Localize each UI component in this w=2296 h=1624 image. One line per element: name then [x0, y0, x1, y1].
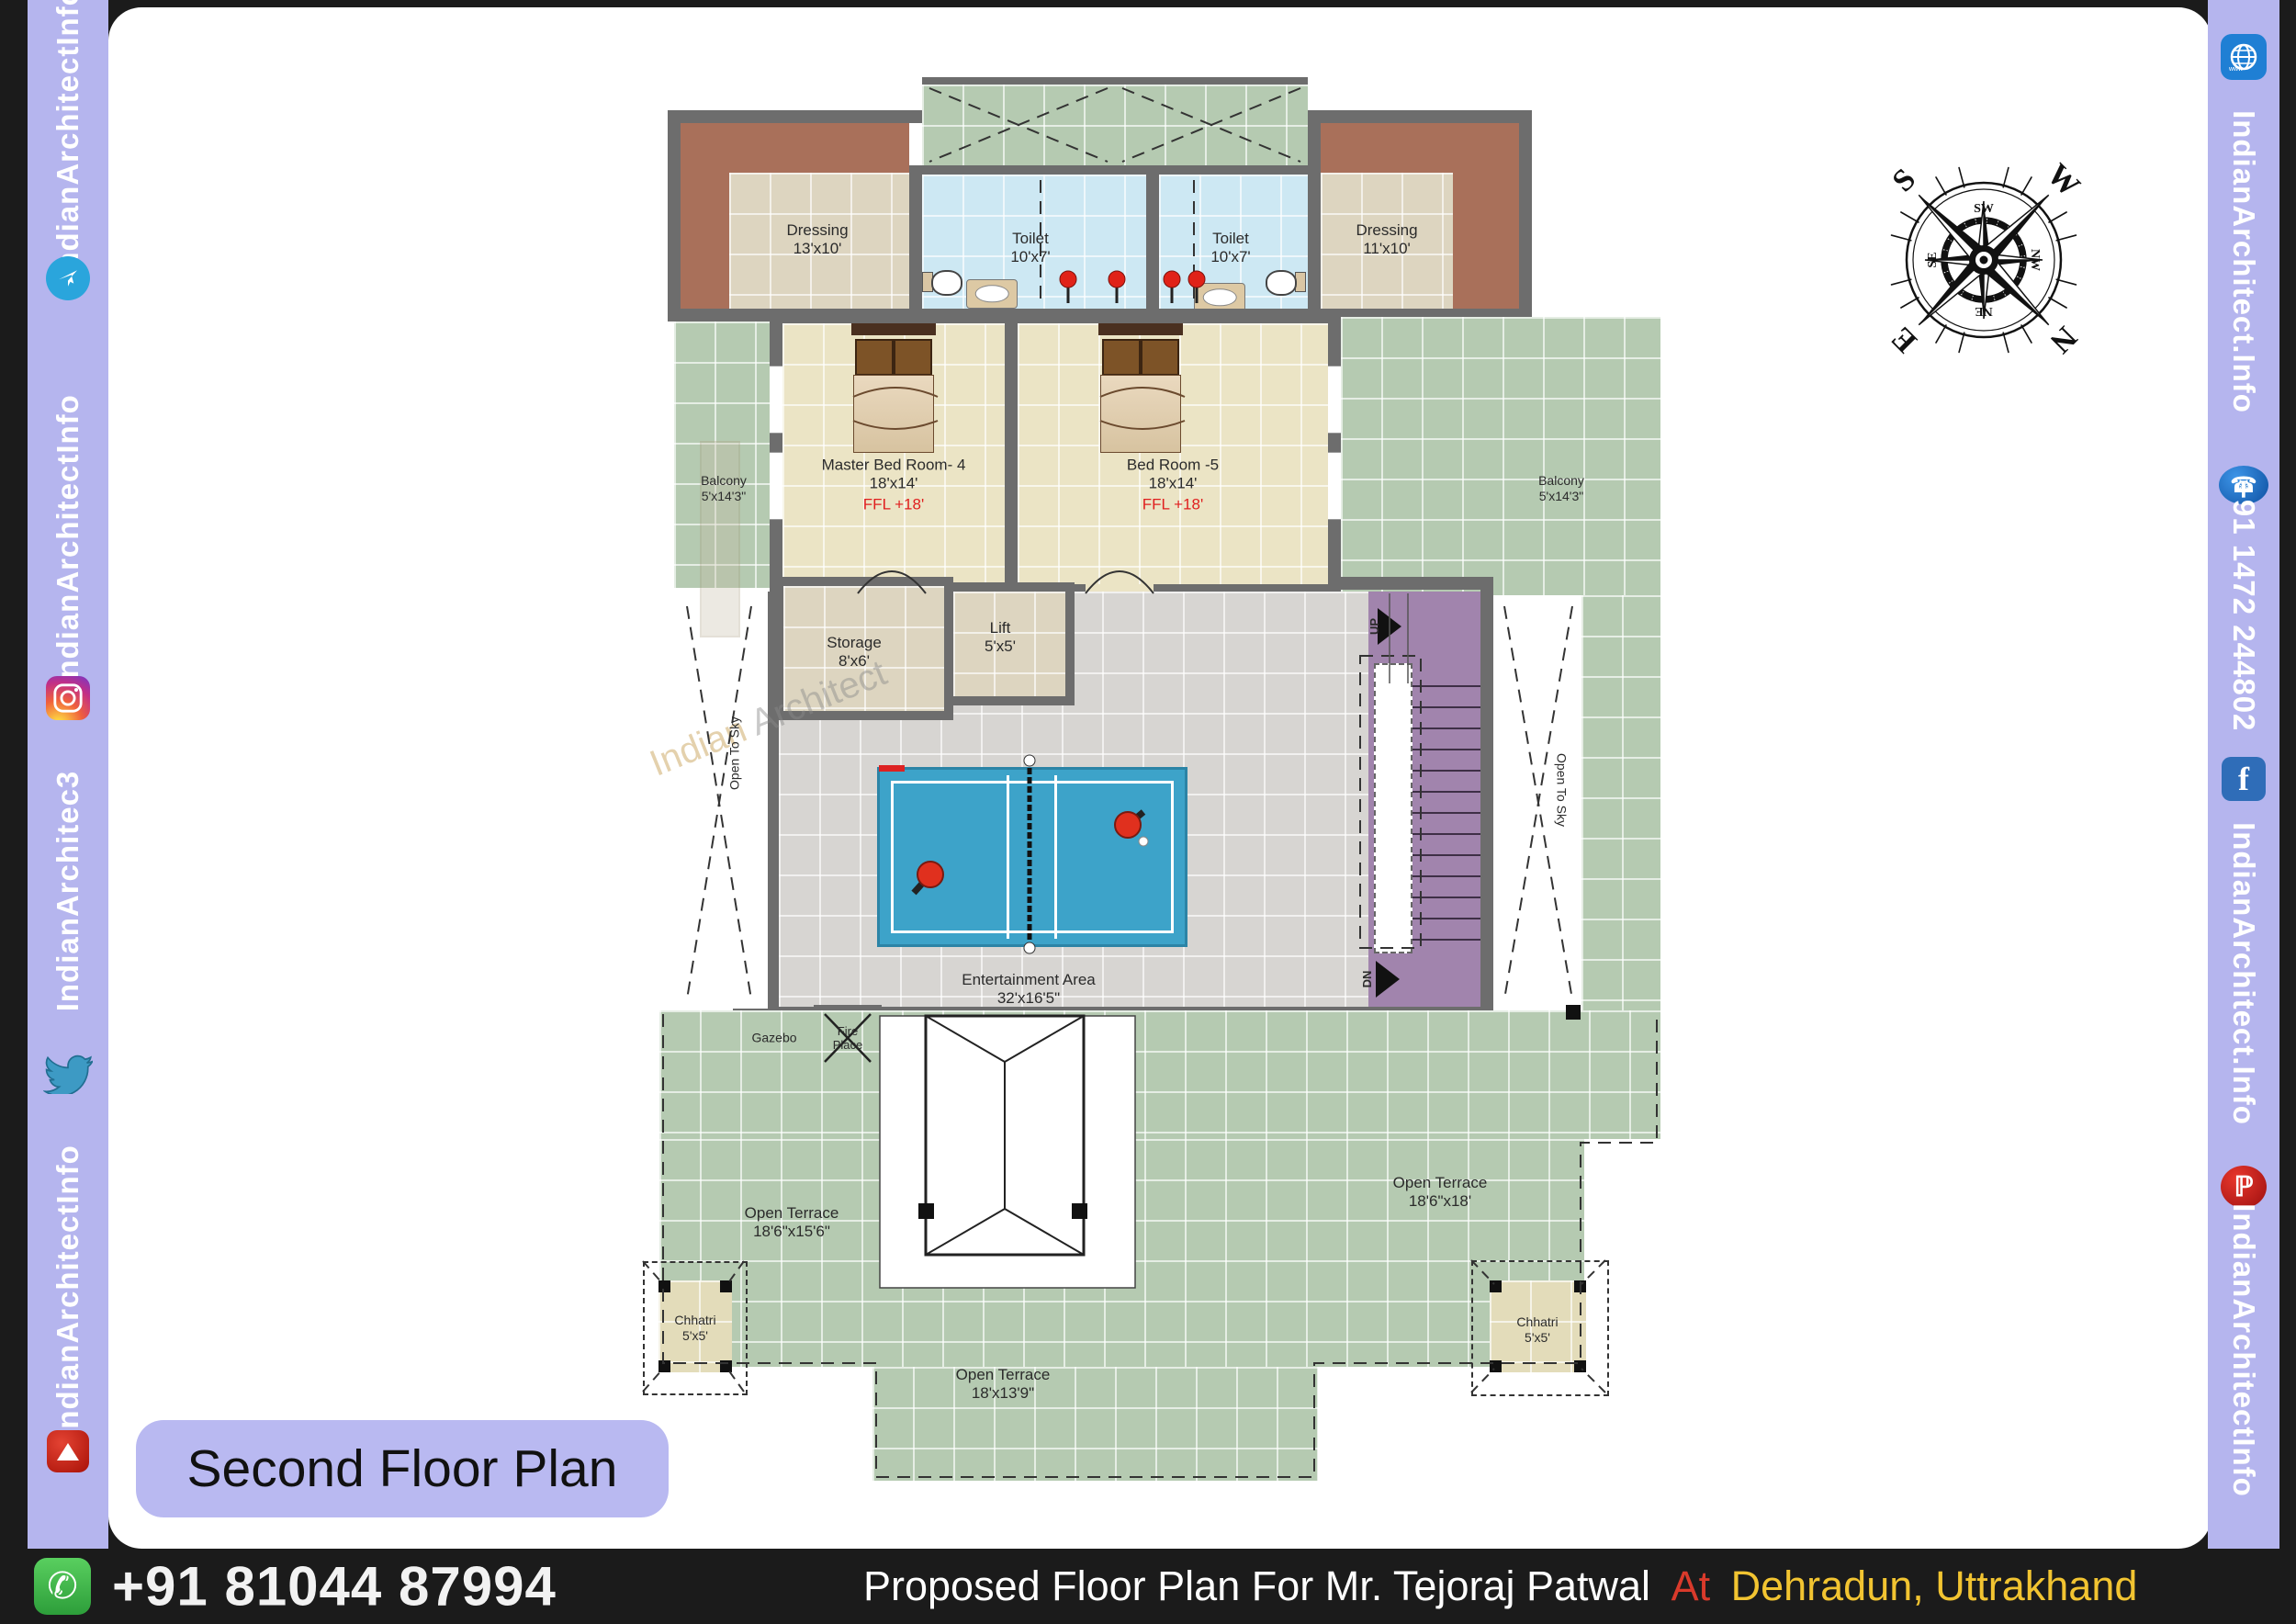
- label-terrace-left: Open Terrace18'6"x15'6": [745, 1204, 839, 1241]
- label-open-to-sky-left: Open To Sky: [727, 716, 743, 790]
- label-gazebo: Gazebo: [751, 1031, 796, 1046]
- label-stairs-up: UP: [1366, 618, 1384, 635]
- footer-title-main: Proposed Floor Plan For Mr. Tejoraj Patw…: [863, 1562, 1650, 1609]
- label-toilet-right: Toilet10'x7': [1210, 230, 1250, 266]
- label-balcony-left: Balcony5'x14'3": [701, 473, 747, 504]
- compass-ne: NE: [1975, 304, 1992, 318]
- plan-title: Second Floor Plan: [136, 1420, 669, 1517]
- skylight-roof: [880, 1016, 1135, 1288]
- label-bedroom5: Bed Room -518'x14' FFL +18': [1127, 457, 1219, 514]
- table-tennis-net-and-paddles: [914, 755, 1148, 953]
- label-terrace-right: Open Terrace18'6"x18': [1393, 1174, 1488, 1211]
- label-storage: Storage8'x6': [827, 634, 882, 671]
- compass-sw: SW: [1974, 202, 1994, 216]
- compass-rose: N E S W NE SE SW NW: [1841, 118, 2126, 402]
- whatsapp-glyph: ✆: [47, 1565, 78, 1607]
- label-entertainment: Entertainment Area32'x16'5": [962, 971, 1096, 1008]
- label-toilet-left: Toilet10'x7': [1010, 230, 1050, 266]
- whatsapp-icon[interactable]: ✆: [34, 1558, 91, 1615]
- footer-title-location: Dehradun, Uttrakhand: [1731, 1562, 2138, 1609]
- footer-whatsapp-number: +91 81044 87994: [112, 1555, 557, 1618]
- compass-s: S: [1886, 163, 1923, 199]
- plan-title-text: Second Floor Plan: [187, 1438, 618, 1499]
- compass-n: N: [2043, 320, 2084, 360]
- compass-e: E: [1885, 321, 1923, 359]
- label-chhatri-left: Chhatri5'x5': [674, 1313, 715, 1344]
- label-stairs-dn: DN: [1358, 971, 1377, 988]
- footer-bar: ✆ +91 81044 87994 Proposed Floor Plan Fo…: [0, 1549, 2296, 1624]
- label-lift: Lift5'x5': [985, 619, 1016, 656]
- label-dressing-left: Dressing13'x10': [786, 221, 848, 258]
- poster-canvas: IndianArchitectInfo IndianArchitectInfo …: [0, 0, 2296, 1624]
- footer-title: Proposed Floor Plan For Mr. Tejoraj Patw…: [863, 1562, 2137, 1610]
- label-terrace-bottom: Open Terrace18'x13'9": [956, 1366, 1051, 1403]
- label-open-to-sky-right: Open To Sky: [1554, 753, 1570, 827]
- footer-title-at: At: [1662, 1562, 1720, 1609]
- label-fireplace: FirePlace: [833, 1024, 863, 1052]
- shower-icons: [1060, 271, 1205, 303]
- label-dressing-right: Dressing11'x10': [1356, 221, 1417, 258]
- label-chhatri-right: Chhatri5'x5': [1516, 1314, 1558, 1346]
- stair-arrows: [1376, 593, 1408, 998]
- compass-nw: NW: [2028, 249, 2042, 271]
- label-master-bedroom: Master Bed Room- 418'x14' FFL +18': [822, 457, 966, 514]
- label-balcony-right: Balcony5'x14'3": [1538, 473, 1584, 504]
- compass-se: SE: [1926, 252, 1940, 267]
